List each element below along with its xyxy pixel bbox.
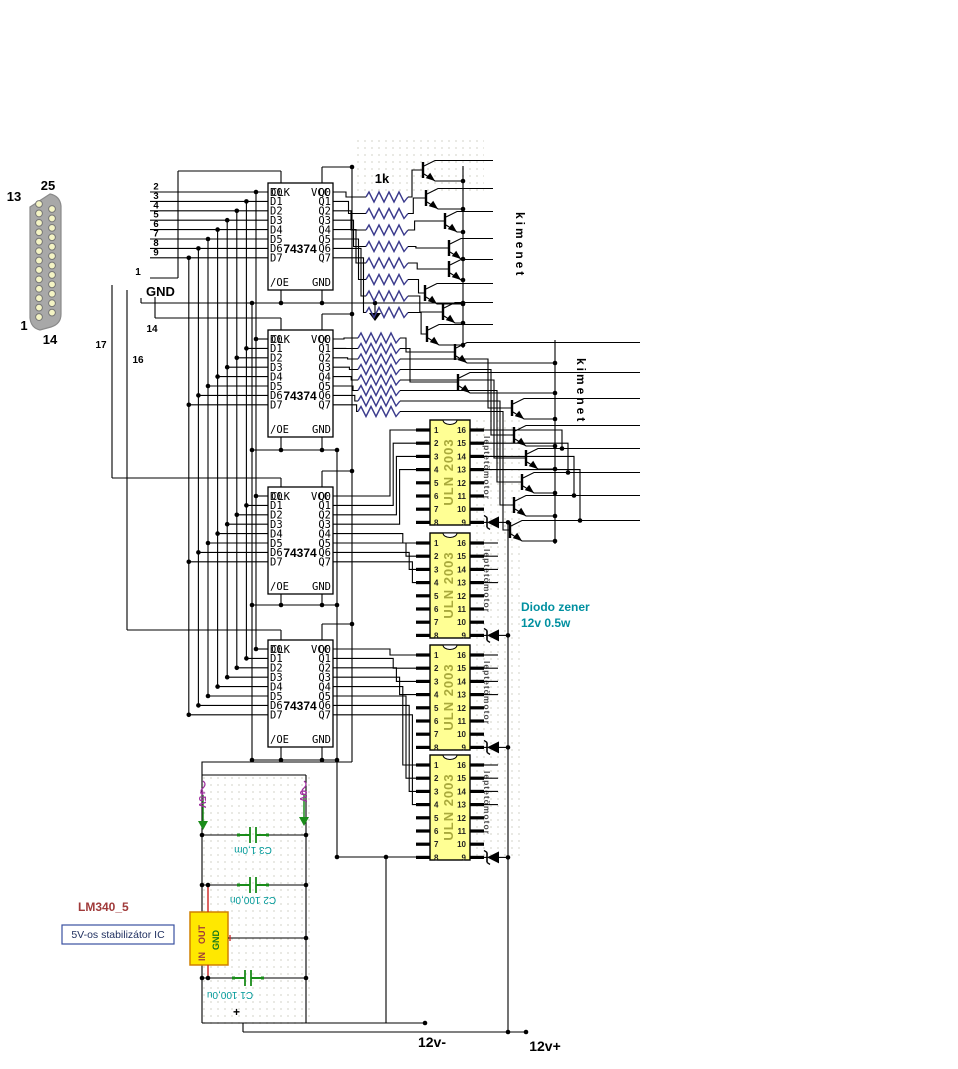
uln-pin-number: 2 [434, 774, 439, 783]
leptetomotor-label: leptetömotor [482, 436, 492, 500]
uln-pin-number: 12 [457, 592, 466, 601]
uln-pin-number: 2 [434, 439, 439, 448]
latch-ic-4: CLKVCCD0Q0D1Q1D2Q2D3Q3D4Q4D5Q5D6Q6D7Q7/O… [268, 622, 354, 763]
latch-ic-3: CLKVCCD0Q0D1Q1D2Q2D3Q3D4Q4D5Q5D6Q6D7Q7/O… [268, 469, 354, 608]
db25-hole [36, 295, 43, 302]
stepper-driver-schematic: 1325114234567891GND141716CLKVCCD0Q0D1Q1D… [0, 0, 958, 1069]
uln-pin-number: 4 [434, 466, 439, 475]
wire-label-14: 14 [146, 324, 158, 335]
uln-pin-number: 4 [434, 691, 439, 700]
uln-pin-number: 10 [457, 505, 466, 514]
uln-pin-number: 3 [434, 452, 439, 461]
uln-pin-number: 4 [434, 801, 439, 810]
regulator-pin-out: OUT [197, 925, 207, 945]
regulator-pin-in: IN [197, 952, 207, 961]
uln-pin-number: 1 [434, 761, 439, 770]
db25-hole [36, 257, 43, 264]
db25-hole [36, 276, 43, 283]
latch-qout-label: Q7 [318, 400, 331, 412]
uln-part-number: ULN 2003 [441, 438, 456, 505]
db25-hole [49, 215, 56, 222]
uln-pin-number: 6 [434, 605, 439, 614]
regulator-pin-gnd: GND [211, 930, 221, 951]
db25-hole [49, 206, 56, 213]
uln-pin-number: 4 [434, 579, 439, 588]
leptetomotor-label: leptetömotor [482, 771, 492, 835]
uln-pin-number: 10 [457, 730, 466, 739]
uln-pin-number: 14 [457, 452, 466, 461]
uln-pin-number: 11 [458, 605, 467, 614]
uln-pin-number: 16 [457, 426, 466, 435]
wire-label-16: 16 [132, 355, 144, 366]
uln-pin-number: 13 [457, 579, 466, 588]
latch-part-number: 74374 [283, 242, 317, 256]
uln-pin-number: 10 [457, 840, 466, 849]
uln-pin-number: 15 [457, 664, 466, 673]
wire-label-1: 1 [135, 267, 141, 278]
db25-hole [36, 201, 43, 208]
db25-hole [49, 234, 56, 241]
db25-hole [36, 219, 43, 226]
uln-pin-number: 7 [434, 618, 439, 627]
uln-pin-number: 3 [434, 787, 439, 796]
uln-pin-number: 7 [434, 730, 439, 739]
uln-pin-number: 15 [457, 774, 466, 783]
uln-pin-number: 5 [434, 592, 439, 601]
db25-hole [36, 285, 43, 292]
db25-hole [36, 248, 43, 255]
label-latch-pins-gnd: GND [312, 734, 331, 746]
latch-qout-label: Q7 [318, 710, 331, 722]
latch-part-number: 74374 [283, 699, 317, 713]
latch-part-number: 74374 [283, 389, 317, 403]
uln-pin-number: 14 [457, 677, 466, 686]
latch-din-label: D7 [270, 253, 283, 265]
label-latch-pins-gnd: GND [312, 581, 331, 593]
uln-pin-number: 5 [434, 479, 439, 488]
uln-pin-number: 9 [462, 631, 467, 640]
uln-pin-number: 6 [434, 827, 439, 836]
db25-hole [49, 309, 56, 316]
zero-v-label: 0V [297, 790, 308, 803]
leptetomotor-label: leptetömotor [482, 549, 492, 613]
db25-hole [36, 304, 43, 311]
db25-hole [49, 224, 56, 231]
uln-pin-number: 11 [458, 717, 467, 726]
latch-din-label: D7 [270, 400, 283, 412]
db25-label-14: 14 [43, 332, 58, 347]
kimenet-label-2: kimenet [574, 358, 588, 424]
label-12v-pos: 12v+ [529, 1038, 561, 1054]
label-latch-pins-oe: /OE [270, 424, 289, 436]
zener-note-line2: 12v 0.5w [521, 616, 571, 630]
db25-hole [36, 210, 43, 217]
uln-pin-number: 12 [457, 704, 466, 713]
uln-part-number: ULN 2003 [441, 663, 456, 730]
uln-pin-number: 10 [457, 618, 466, 627]
db25-hole [49, 243, 56, 250]
uln-pin-number: 1 [434, 651, 439, 660]
db25-label-1: 1 [20, 318, 27, 333]
uln-pin-number: 2 [434, 552, 439, 561]
resistor-1k-label: 1k [375, 171, 390, 186]
uln-pin-number: 1 [434, 539, 439, 548]
uln-pin-number: 5 [434, 814, 439, 823]
wire-label-17: 17 [95, 340, 107, 351]
supply-rails-12v: 12v-12v+ [202, 1021, 561, 1054]
uln-pin-number: 9 [462, 518, 467, 527]
label-latch-pins-oe: /OE [270, 734, 289, 746]
uln-pin-number: 15 [457, 552, 466, 561]
uln-pin-number: 9 [462, 743, 467, 752]
label-latch-pins-oe: /OE [270, 581, 289, 593]
kimenet-label-1: kimenet [513, 212, 527, 278]
wire-label-gnd: GND [146, 284, 175, 299]
uln-part-number: ULN 2003 [441, 773, 456, 840]
uln-pin-number: 3 [434, 565, 439, 574]
uln-pin-number: 13 [457, 466, 466, 475]
db25-hole [49, 272, 56, 279]
cap-label: C1 100,0u [207, 989, 253, 1000]
db25-hole [49, 253, 56, 260]
db25-label-13: 13 [7, 189, 21, 204]
cap-label: C2 100,0n [230, 894, 276, 905]
db25-hole [36, 267, 43, 274]
schematic-page: 1325114234567891GND141716CLKVCCD0Q0D1Q1D… [0, 0, 958, 1069]
uln-pin-number: 16 [457, 539, 466, 548]
cap-label: C3 1,0m [234, 844, 272, 855]
port-pin-label: 9 [153, 247, 158, 258]
uln-pin-number: 1 [434, 426, 439, 435]
db25-connector: 1325114 [7, 178, 61, 347]
regulator-caption: 5V-os stabilizátor IC [71, 929, 165, 941]
latch-part-number: 74374 [283, 546, 317, 560]
label-latch-pins-oe: /OE [270, 277, 289, 289]
uln-pin-number: 14 [457, 565, 466, 574]
latch-ic-1: CLKVCCD0Q0D1Q1D2Q2D3Q3D4Q4D5Q5D6Q6D7Q7/O… [268, 165, 354, 306]
latch-din-label: D7 [270, 710, 283, 722]
uln-pin-number: 8 [434, 631, 439, 640]
uln-pin-number: 12 [457, 479, 466, 488]
uln-pin-number: 5 [434, 704, 439, 713]
uln-pin-number: 2 [434, 664, 439, 673]
uln-pin-number: 16 [457, 761, 466, 770]
latch-qout-label: Q7 [318, 253, 331, 265]
uln-pin-number: 8 [434, 518, 439, 527]
zener-note-line1: Diodo zener [521, 600, 590, 614]
plus5v-label: +5V [196, 790, 207, 808]
label-12v-neg: 12v- [418, 1034, 446, 1050]
uln-pin-number: 7 [434, 840, 439, 849]
db25-hole [49, 262, 56, 269]
db25-label-25: 25 [41, 178, 55, 193]
uln-pin-number: 6 [434, 492, 439, 501]
db25-hole [36, 314, 43, 321]
transistor-array-1: kimenet [422, 161, 527, 349]
uln-pin-number: 15 [457, 439, 466, 448]
leptetomotor-label: leptetömotor [482, 661, 492, 725]
latch-qout-label: Q7 [318, 557, 331, 569]
regulator-part-label: LM340_5 [78, 900, 129, 914]
uln-pin-number: 16 [457, 651, 466, 660]
uln-pin-number: 13 [457, 801, 466, 810]
uln-pin-number: 6 [434, 717, 439, 726]
db25-hole [49, 290, 56, 297]
latch-din-label: D7 [270, 557, 283, 569]
uln-pin-number: 8 [434, 853, 439, 862]
uln-pin-number: 9 [462, 853, 467, 862]
uln-pin-number: 3 [434, 677, 439, 686]
db25-hole [36, 229, 43, 236]
uln-pin-number: 11 [458, 492, 467, 501]
uln-pin-number: 13 [457, 691, 466, 700]
uln-pin-number: 11 [458, 827, 467, 836]
label-latch-pins-gnd: GND [312, 277, 331, 289]
db25-hole [36, 238, 43, 245]
uln-pin-number: 7 [434, 505, 439, 514]
latch-ic-2: CLKVCCD0Q0D1Q1D2Q2D3Q3D4Q4D5Q5D6Q6D7Q7/O… [268, 312, 354, 453]
electrolytic-plus: + [233, 1005, 240, 1019]
uln-pin-number: 8 [434, 743, 439, 752]
label-latch-pins-gnd: GND [312, 424, 331, 436]
db25-hole [49, 281, 56, 288]
uln-pin-number: 14 [457, 787, 466, 796]
db25-hole [49, 300, 56, 307]
uln-part-number: ULN 2003 [441, 551, 456, 618]
uln-pin-number: 12 [457, 814, 466, 823]
